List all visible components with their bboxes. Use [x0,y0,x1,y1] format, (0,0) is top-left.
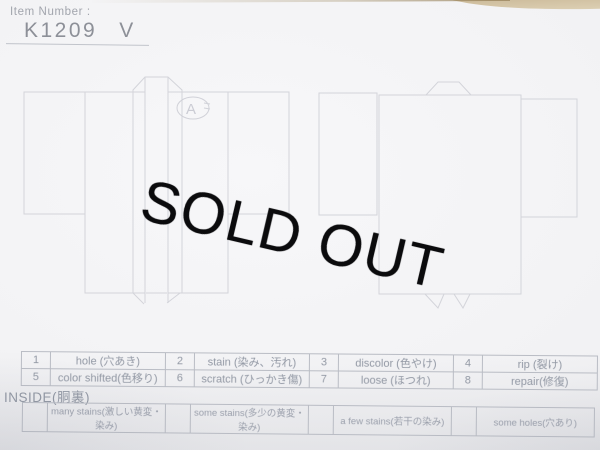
flaw-label-stain: stain (染み、汚れ) [194,353,309,371]
flaw-code-2: 2 [165,353,194,370]
flaw-label-hole: hole (穴あき) [50,352,165,370]
inside-checkbox-a-few-stains [308,405,333,434]
inside-option-some-stains: some stains(多少の黄変・染み) [190,404,308,434]
inside-checkbox-some-stains [165,404,190,433]
flaw-code-5: 5 [21,369,50,386]
inside-option-a-few-stains: a few stains(若干の染み) [333,405,451,435]
back-left-sleeve [319,93,377,215]
flaw-code-4: 4 [453,355,482,372]
flaw-label-rip: rip (裂け) [482,355,597,373]
flaw-code-8: 8 [453,372,482,389]
flaw-legend-table: 1 hole (穴あき) 2 stain (染み、汚れ) 3 discolor … [21,351,598,391]
inside-options-row: many stains(激しい黄変・染み) some stains(多少の黄変・… [22,403,594,437]
front-left-sleeve [24,92,85,214]
flaw-label-loose: loose (ほつれ) [338,371,453,389]
flaw-code-3: 3 [309,354,338,371]
inside-option-some-holes: some holes(穴あり) [476,407,594,437]
flaw-code-7: 7 [309,371,338,388]
back-right-sleeve [521,99,577,217]
flaw-label-scratch: scratch (ひっかき傷) [194,370,309,388]
condition-sheet-photo: Item Number : K1209V A SOLD OUT [0,0,600,450]
inside-checkbox-some-holes [451,407,476,436]
inside-checkbox-many-stains [22,403,47,432]
front-left-body-panel [85,92,145,293]
inside-option-many-stains: many stains(激しい黄変・染み) [47,403,165,433]
flaw-code-6: 6 [165,370,194,387]
flaw-label-discolor: discolor (色やけ) [338,354,453,372]
back-collar [426,82,471,95]
annotation-a-letter: A [186,101,196,118]
inside-options-table: many stains(激しい黄変・染み) some stains(多少の黄変・… [22,402,595,437]
flaw-code-1: 1 [21,352,50,369]
flaw-label-repair: repair(修復) [482,372,597,390]
flaw-label-color-shifted: color shifted(色移り) [50,369,165,387]
